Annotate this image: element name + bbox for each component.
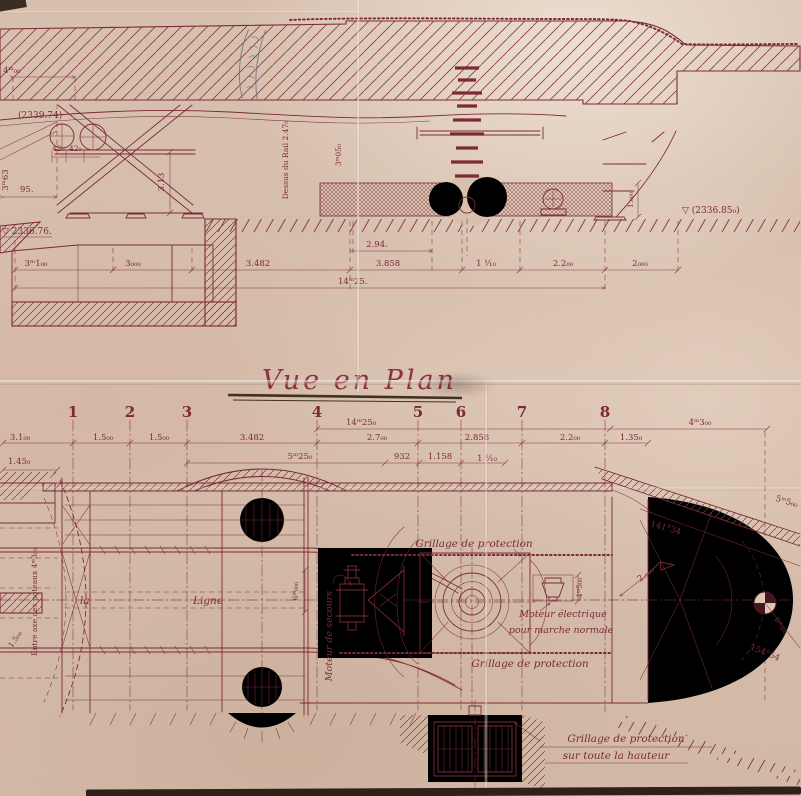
dim-1-1-10: 1 ¹⁄₁₀ (476, 259, 496, 269)
dim-3m63: 3ᵐ63 (1, 169, 11, 190)
dim-1-5b: 1.5₀₀ (149, 433, 170, 443)
grid-1: 1 (68, 403, 78, 421)
dim-3m05: 3ᵐ05₀ (334, 144, 343, 166)
la-label: la (80, 595, 90, 607)
dim-3482: 3.482 (246, 259, 270, 269)
dim-5m25: 5ᵐ25₀ (288, 452, 313, 462)
dim-14m25-plan: 14ᵐ25₀ (346, 418, 377, 428)
level-2336-76: ▽ 2336.76. (2, 227, 52, 237)
protection-grille-detail (400, 700, 545, 790)
dim-4m3: 4ᵐ3₀₀ (689, 418, 712, 428)
cable-lines (0, 110, 566, 120)
emergency-motor-label: Moteur de secours (324, 591, 335, 682)
rail-level-note: Dessus du Rail 2.47₀ (281, 121, 290, 199)
engineering-drawing: 4ᵐ₀₀ (2339.74) 42₀ 42₀ 95. 3ᵐ63 3.13 ▽ 2… (0, 0, 801, 796)
entre-axe-note: Entre axe des poteaux 4ᵐ3₀₀ (30, 548, 39, 656)
dim-6m-vertical: 6ᵐ₀₀₀ (291, 582, 300, 600)
dim-1-45: 1.45₀ (8, 457, 31, 467)
dim-42a: 42₀ (52, 144, 65, 153)
dim-2000: 2₀₀₀ (632, 259, 648, 269)
dim-1-35: 1.35₀ (620, 433, 643, 443)
dim-5m5: 5ᵐ5₀₀ (774, 494, 799, 510)
dim-14m25-elev: 14ᵐ25. (338, 277, 368, 287)
dim-2-7: 2.7₀₀ (367, 433, 388, 443)
dim-2-2: 2.2₀₀ (553, 259, 574, 269)
dim-1-5-diag: 1.5₀₀ (6, 629, 24, 649)
dim-2-2-plan: 2.2₀₀ (560, 433, 581, 443)
dim-4m5: 4ᵐ5₀₀ (575, 578, 584, 598)
grid-2: 2 (125, 403, 135, 421)
electric-motor-group: 4ᵐ5₀₀ Moteur électrique pour marche norm… (509, 572, 614, 636)
page-title: Vue en Plan (262, 365, 457, 396)
ligne-label: Ligne (192, 595, 223, 607)
electric-motor-label-1: Moteur électrique (518, 609, 607, 620)
dim-3858: 3.858 (376, 259, 400, 269)
elevation-view: 4ᵐ₀₀ (2339.74) 42₀ 42₀ 95. 3ᵐ63 3.13 ▽ 2… (0, 18, 800, 326)
ground-tick-band (205, 219, 800, 235)
grid-7: 7 (517, 403, 527, 421)
dim-2-858: 2.858 (465, 433, 489, 443)
dim-3000: 3₀₀₀ (125, 259, 141, 269)
grid-5: 5 (413, 403, 423, 421)
dim-3-13: 3.13 (157, 173, 167, 192)
dim-1-1-10-plan: 1 ¹⁄₁₀ (477, 454, 497, 464)
grid-3: 3 (182, 403, 192, 421)
dim-3-1: 3.1₀₀ (10, 433, 31, 443)
grillage-full-label-1: Grillage de protection (567, 733, 685, 745)
electric-motor-label-2: pour marche normale (509, 625, 614, 636)
title-block: Vue en Plan (228, 365, 462, 402)
grillage-bottom-label: Grillage de protection (471, 658, 589, 670)
dim-2-94: 2.94. (366, 240, 388, 250)
dim-1-5a: 1.5₀₀ (93, 433, 114, 443)
grillage-full-label-2: sur toute la hauteur (563, 750, 671, 762)
dim-3482-plan: 3.482 (240, 433, 264, 443)
dim-4m: 4ᵐ₀₀ (3, 66, 21, 76)
grillage-top-label: Grillage de protection (415, 538, 533, 550)
dim-1m: 1.₀₀₀ (626, 192, 635, 208)
dim-95: 95. (20, 185, 34, 195)
drawing-sheet: 4ᵐ₀₀ (2339.74) 42₀ 42₀ 95. 3ᵐ63 3.13 ▽ 2… (0, 0, 801, 796)
plan-view: 1 2 3 4 5 6 7 8 14ᵐ25₀ 4ᵐ3₀₀ 3.1₀₀ 1.5₀₀… (0, 403, 800, 790)
dim-42b: 42₀ (69, 144, 82, 153)
grid-4: 4 (312, 403, 322, 421)
dim-1158: 1.158 (428, 452, 452, 462)
earth-hatch-band (0, 21, 800, 104)
level-2336-85: ▽ (2336.85₀) (682, 205, 740, 216)
dim-932: 932 (394, 452, 410, 462)
grid-6: 6 (456, 403, 466, 421)
dim-3m1: 3ᵐ1₀₀ (25, 259, 48, 269)
level-2339-74: (2339.74) (18, 110, 62, 121)
grid-8: 8 (600, 403, 610, 421)
